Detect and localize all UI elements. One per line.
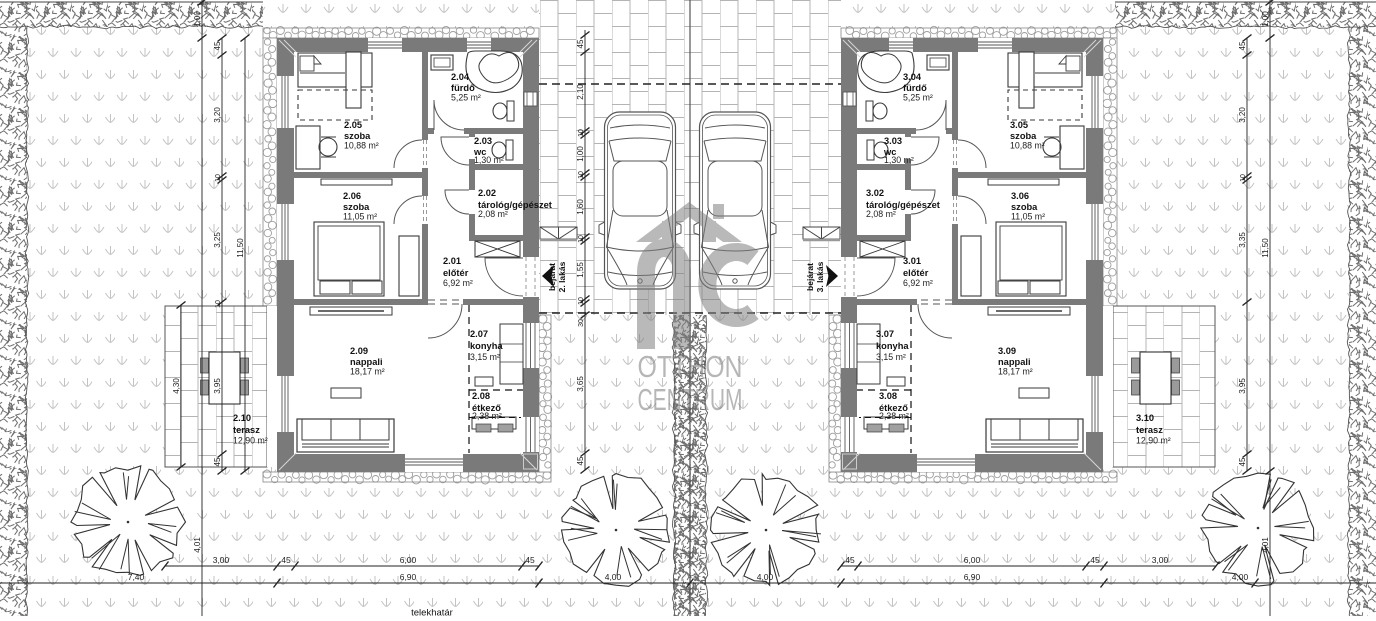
svg-text:30: 30 [578, 319, 585, 327]
svg-text:3,20: 3,20 [1238, 107, 1247, 123]
svg-text:előtér: előtér [443, 268, 469, 278]
svg-text:6,90: 6,90 [400, 572, 417, 582]
svg-text:2.08: 2.08 [472, 391, 490, 401]
svg-text:10: 10 [578, 129, 585, 137]
svg-text:1,00: 1,00 [1261, 11, 1270, 27]
svg-text:11,50: 11,50 [236, 238, 245, 258]
svg-text:2. lakás: 2. lakás [557, 261, 567, 292]
svg-text:terasz: terasz [233, 425, 260, 435]
svg-text:2,38 m²: 2,38 m² [879, 411, 909, 421]
svg-text:11,05 m²: 11,05 m² [1011, 212, 1045, 222]
svg-text:6,92 m²: 6,92 m² [443, 278, 473, 288]
svg-text:2.01: 2.01 [443, 256, 461, 266]
svg-text:1,00: 1,00 [576, 146, 585, 162]
svg-text:szoba: szoba [1011, 202, 1038, 212]
svg-text:2.06: 2.06 [343, 191, 361, 201]
svg-text:3.04: 3.04 [903, 72, 922, 82]
svg-text:45: 45 [576, 39, 585, 48]
svg-text:OTTHON: OTTHON [638, 349, 743, 384]
svg-text:45: 45 [1238, 41, 1247, 50]
svg-text:3. lakás: 3. lakás [815, 261, 825, 292]
svg-text:45: 45 [845, 555, 855, 565]
svg-text:45: 45 [576, 456, 585, 465]
svg-text:18,17 m²: 18,17 m² [350, 367, 385, 377]
svg-text:5,25 m²: 5,25 m² [451, 93, 481, 103]
svg-text:10: 10 [215, 174, 222, 182]
svg-text:10: 10 [578, 235, 585, 243]
svg-text:fürdő: fürdő [451, 83, 475, 93]
svg-text:3,15 m²: 3,15 m² [470, 352, 500, 362]
svg-text:4,01: 4,01 [1261, 537, 1270, 553]
svg-text:3,25: 3,25 [213, 232, 222, 248]
svg-text:3,65: 3,65 [576, 376, 585, 392]
svg-text:2.04: 2.04 [451, 72, 470, 82]
svg-text:2.07: 2.07 [470, 329, 488, 339]
svg-text:12,90 m²: 12,90 m² [233, 436, 268, 446]
svg-text:3.07: 3.07 [876, 329, 894, 339]
svg-text:CENTRUM: CENTRUM [638, 382, 743, 417]
svg-text:előtér: előtér [903, 268, 929, 278]
svg-text:szoba: szoba [343, 202, 370, 212]
svg-text:3,95: 3,95 [1238, 378, 1247, 394]
svg-text:terasz: terasz [1136, 425, 1163, 435]
svg-text:1,60: 1,60 [576, 199, 585, 215]
svg-text:3.02: 3.02 [866, 188, 884, 198]
svg-text:4,00: 4,00 [605, 572, 622, 582]
svg-text:10: 10 [215, 300, 222, 308]
svg-text:2.02: 2.02 [478, 188, 496, 198]
svg-text:3,35: 3,35 [1238, 232, 1247, 248]
svg-text:4,00: 4,00 [1232, 572, 1249, 582]
svg-text:11,50: 11,50 [1261, 238, 1270, 258]
svg-text:2,38 m²: 2,38 m² [472, 411, 502, 421]
svg-text:18,17 m²: 18,17 m² [998, 367, 1033, 377]
svg-text:45: 45 [213, 457, 222, 466]
svg-text:6,00: 6,00 [400, 555, 417, 565]
svg-text:3.01: 3.01 [903, 256, 921, 266]
svg-text:1,00: 1,00 [193, 11, 202, 27]
svg-text:6,92 m²: 6,92 m² [903, 278, 933, 288]
svg-text:1,55: 1,55 [576, 262, 585, 278]
svg-text:45: 45 [1090, 555, 1100, 565]
svg-text:3.03: 3.03 [884, 136, 902, 146]
svg-text:2.03: 2.03 [474, 136, 492, 146]
svg-text:2.05: 2.05 [344, 120, 362, 130]
svg-text:1,30 m²: 1,30 m² [884, 155, 914, 165]
svg-text:telekhatár: telekhatár [411, 608, 453, 617]
svg-text:10: 10 [1240, 174, 1247, 182]
svg-text:3,95: 3,95 [213, 378, 222, 394]
svg-text:10,88 m²: 10,88 m² [1010, 141, 1045, 151]
svg-text:3.10: 3.10 [1136, 413, 1154, 423]
svg-text:3,00: 3,00 [213, 555, 230, 565]
svg-text:3.06: 3.06 [1011, 191, 1029, 201]
svg-text:4,01: 4,01 [193, 537, 202, 553]
svg-text:4,30: 4,30 [172, 378, 181, 394]
svg-text:szoba: szoba [1010, 131, 1037, 141]
svg-text:2,08 m²: 2,08 m² [478, 209, 508, 219]
svg-text:3,00: 3,00 [1152, 555, 1169, 565]
svg-text:2.09: 2.09 [350, 346, 368, 356]
svg-text:konyha: konyha [470, 341, 503, 351]
svg-text:szoba: szoba [344, 131, 371, 141]
svg-text:5,25 m²: 5,25 m² [903, 93, 933, 103]
svg-text:45: 45 [213, 41, 222, 50]
svg-text:3.09: 3.09 [998, 346, 1016, 356]
svg-text:fürdő: fürdő [903, 83, 927, 93]
svg-text:2.10: 2.10 [233, 413, 251, 423]
svg-text:6,90: 6,90 [964, 572, 981, 582]
svg-text:3.05: 3.05 [1010, 120, 1028, 130]
svg-text:45: 45 [281, 555, 291, 565]
svg-text:nappali: nappali [350, 357, 383, 367]
svg-text:11,05 m²: 11,05 m² [343, 212, 377, 222]
svg-text:7,40: 7,40 [128, 572, 145, 582]
svg-text:10,88 m²: 10,88 m² [344, 141, 379, 151]
svg-text:45: 45 [1238, 457, 1247, 466]
svg-text:2,10: 2,10 [576, 84, 585, 100]
svg-text:6,00: 6,00 [964, 555, 981, 565]
svg-text:bejárat: bejárat [547, 263, 557, 291]
svg-text:4,00: 4,00 [757, 572, 774, 582]
svg-text:konyha: konyha [876, 341, 909, 351]
svg-text:nappali: nappali [998, 357, 1031, 367]
svg-text:3,20: 3,20 [213, 107, 222, 123]
svg-text:45: 45 [525, 555, 535, 565]
svg-text:3,15 m²: 3,15 m² [876, 352, 906, 362]
svg-text:10: 10 [578, 171, 585, 179]
svg-text:10: 10 [578, 297, 585, 305]
svg-text:2,08 m²: 2,08 m² [866, 209, 896, 219]
svg-text:1,30 m²: 1,30 m² [474, 155, 504, 165]
svg-text:bejárat: bejárat [805, 263, 815, 291]
svg-text:3.08: 3.08 [879, 391, 897, 401]
svg-text:12,90 m²: 12,90 m² [1136, 436, 1171, 446]
